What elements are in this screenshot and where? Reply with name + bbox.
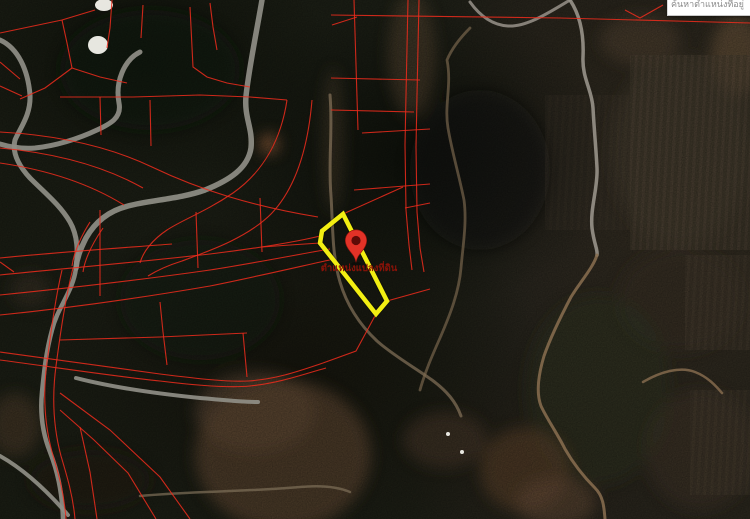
map-canvas: ตำแหน่งแปลงที่ดิน <box>0 0 750 519</box>
building-roof <box>460 450 464 454</box>
search-address-text: ค้นหาตำแหน่งที่อยู่ <box>668 0 750 11</box>
parcel-label: ตำแหน่งแปลงที่ดิน <box>321 260 398 274</box>
building-roof <box>446 432 450 436</box>
search-address-box[interactable]: ค้นหาตำแหน่งที่อยู่ <box>667 0 750 16</box>
forest-texture <box>0 0 750 519</box>
building-roof <box>88 36 108 54</box>
pin-inner-dot <box>351 236 360 245</box>
satellite-map[interactable]: ตำแหน่งแปลงที่ดิน ค้นหาตำแหน่งที่อยู่ <box>0 0 750 519</box>
